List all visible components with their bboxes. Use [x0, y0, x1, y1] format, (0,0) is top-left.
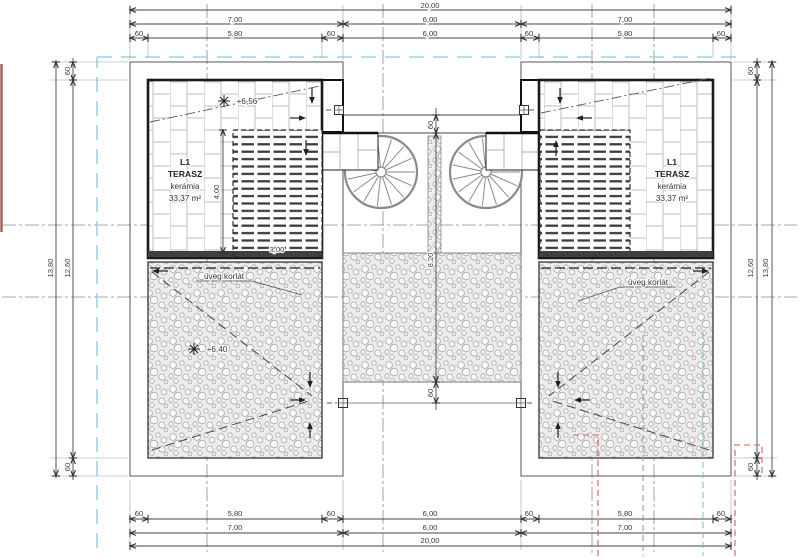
floor-plan-canvas: 20,00 7,00 6,00 7,00 60 5,80 60 6,00 60 …	[0, 0, 800, 558]
right-terrace-material: kerámia	[657, 182, 687, 191]
elevation-lower-value: +6,40	[207, 345, 228, 354]
dim-court-bottom: 6,00	[423, 523, 438, 532]
dim-deck-width: 3,00	[270, 245, 285, 254]
right-pebble-area	[539, 262, 713, 458]
left-glass-railing-label: üveg korlát	[204, 272, 245, 281]
dim-offset: 60	[63, 463, 72, 471]
dim-offset: 60	[135, 29, 143, 38]
dim-offset: 60	[135, 509, 143, 518]
dim-offset: 60	[746, 463, 755, 471]
dim-offset: 60	[525, 29, 533, 38]
left-pebble-area	[148, 262, 322, 458]
dim-total-width-top: 20,00	[420, 1, 439, 10]
right-terrace-deck-hatch	[540, 130, 630, 253]
elevation-upper-value: +6,56	[237, 97, 258, 106]
dim-offset: 60	[717, 509, 725, 518]
right-glass-railing-label: üveg korlát	[628, 278, 669, 287]
court-pebble-area	[343, 253, 521, 382]
dim-terrace-right-top: 5,80	[618, 29, 633, 38]
dim-wing-right-bottom: 7,00	[618, 523, 633, 532]
stair-platform-right	[486, 133, 542, 170]
dim-total-height-right: 13,80	[761, 258, 770, 277]
right-terrace-id: L1	[667, 157, 677, 167]
dim-offset: 60	[426, 121, 435, 129]
dim-offset: 60	[327, 29, 335, 38]
dim-court-top: 6,00	[423, 15, 438, 24]
dim-court-bottom2: 6,00	[423, 509, 438, 518]
dim-offset: 60	[327, 509, 335, 518]
left-terrace-name: TERASZ	[168, 169, 202, 179]
dim-terrace-left-bottom: 5,80	[228, 509, 243, 518]
dim-offset: 60	[717, 29, 725, 38]
right-terrace-name: TERASZ	[655, 169, 689, 179]
dim-offset: 60	[746, 67, 755, 75]
left-terrace-deck-hatch	[233, 130, 322, 253]
left-terrace-area: 33,37 m²	[169, 194, 202, 203]
dim-wing-left-top: 7,00	[228, 15, 243, 24]
right-terrace	[539, 78, 713, 258]
dim-inner-height-left: 12,60	[63, 258, 72, 277]
right-railing-band	[539, 251, 713, 257]
dim-total-height-left: 13,80	[46, 258, 55, 277]
dim-offset: 60	[525, 509, 533, 518]
dim-court-top2: 6,00	[423, 29, 438, 38]
dim-offset: 60	[426, 389, 435, 397]
dim-court-height: 8,20	[426, 253, 435, 268]
dim-wing-right-top: 7,00	[618, 15, 633, 24]
central-pebble-strip	[428, 136, 441, 253]
dim-terrace-left-top: 5,80	[228, 29, 243, 38]
dim-total-width-bottom: 20,00	[420, 536, 439, 545]
dim-inner-height-right: 12,60	[746, 258, 755, 277]
left-terrace-id: L1	[180, 157, 190, 167]
right-terrace-area: 33,37 m²	[656, 194, 689, 203]
stair-platform-left	[322, 133, 378, 170]
dim-wing-left-bottom: 7,00	[228, 523, 243, 532]
dim-deck-height: 4,00	[212, 185, 221, 200]
floor-plan-drawing: 20,00 7,00 6,00 7,00 60 5,80 60 6,00 60 …	[0, 0, 800, 558]
left-terrace-material: kerámia	[170, 182, 200, 191]
dim-terrace-right-bottom: 5,80	[618, 509, 633, 518]
dim-offset: 60	[63, 67, 72, 75]
